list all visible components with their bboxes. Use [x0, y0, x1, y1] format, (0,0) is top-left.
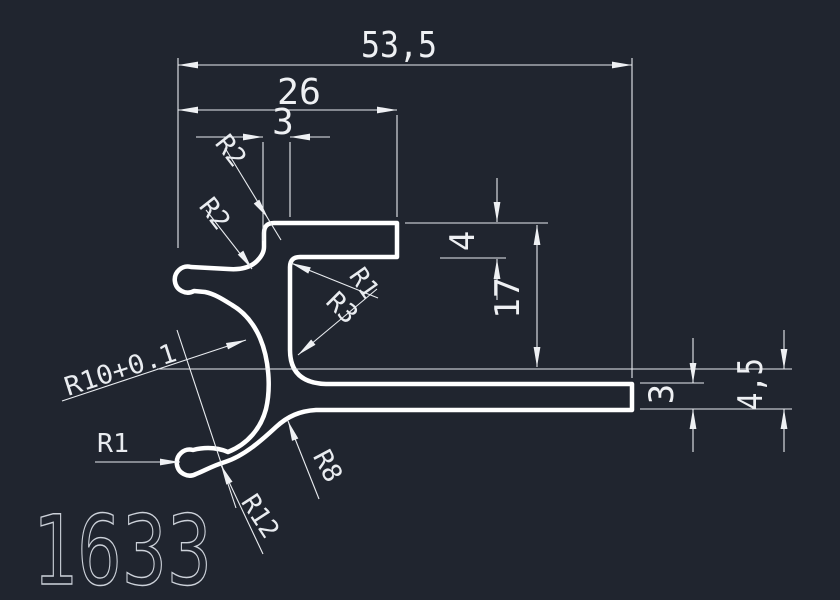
dim-text-leg-thickness: 3 [642, 384, 682, 404]
dim-text-total-width: 53,5 [361, 25, 437, 66]
dim-text-end-height: 4,5 [731, 358, 771, 410]
radius-label-r1-hook-tip: R1 [97, 429, 129, 459]
cad-canvas: 53,5 26 3 4 17 3 4,5 R2 R2 R1 R3 R10+0.1… [0, 0, 840, 600]
dim-text-channel-height: 17 [488, 277, 528, 319]
part-number: 1633 [32, 495, 212, 600]
dim-text-wall-thickness: 3 [272, 102, 294, 143]
dim-text-flange-thickness: 4 [443, 231, 483, 251]
